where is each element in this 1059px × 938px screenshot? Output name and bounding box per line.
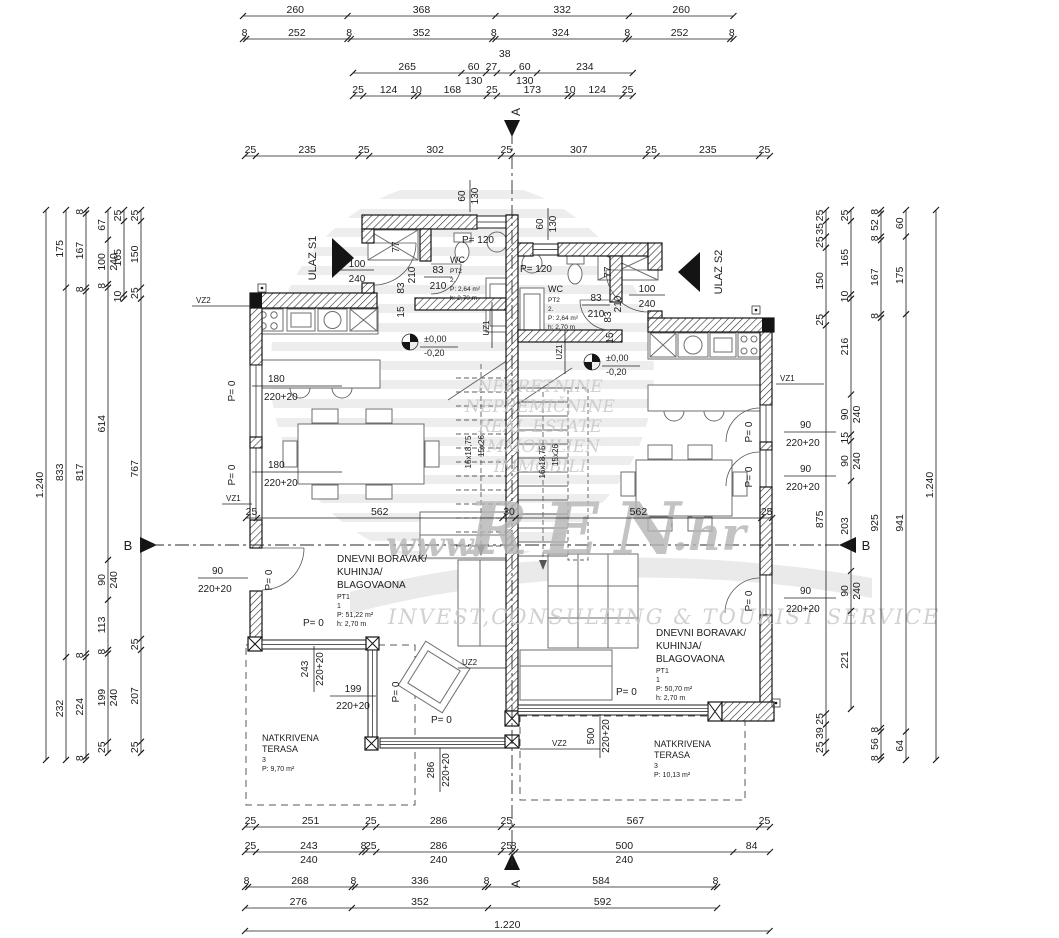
dim-value: 25	[501, 815, 513, 827]
p0-left-4: P= 0	[391, 681, 402, 702]
terrace-right-name-2: TERASA	[654, 750, 690, 760]
dim-value: 25	[622, 84, 634, 96]
p0-h-1: P= 0	[303, 618, 324, 629]
dim-chain-left-1: 1.240	[34, 207, 49, 763]
dim-value: 167	[74, 242, 86, 260]
dim-value: 941	[894, 514, 906, 532]
wc-right-height: h: 2,70 m	[548, 324, 575, 331]
dim-value: 25	[358, 144, 370, 156]
shower-left-label: P= 120	[462, 235, 494, 246]
level-left-zero: ±0,00	[424, 334, 446, 344]
dim-value: 368	[413, 4, 431, 16]
dim-value: 60	[468, 61, 480, 73]
dim-value: 10	[112, 290, 124, 302]
dim-value: 8	[729, 27, 735, 39]
dim-value: 8	[484, 875, 490, 887]
p0-right-1: P= 0	[744, 421, 755, 442]
win-90-left-width: 90	[212, 566, 224, 577]
dim-value: 833	[54, 463, 66, 481]
dim-value: 84	[746, 840, 758, 852]
door-s2-height: 240	[639, 299, 656, 310]
dim-sub-value: 240	[851, 452, 863, 470]
wc-right-num: 2.	[548, 306, 554, 313]
section-b-right-letter: B	[862, 538, 871, 553]
dim-chain-right-3: 852816789258568	[869, 207, 884, 763]
dim-83-left-rot: 83	[396, 282, 407, 294]
win-500-height: 220+20	[601, 719, 612, 753]
dim-value: 100	[96, 253, 108, 271]
dim-value: 8	[869, 313, 881, 319]
dim-value: 25	[112, 210, 124, 222]
dim-value: 25	[352, 84, 364, 96]
terrace-right-num: 3	[654, 763, 658, 770]
wm-tagline: INVEST,CONSULTING & TOURIST SERVICE	[387, 605, 940, 629]
dim-value: 8	[869, 209, 881, 215]
room-left-tag: PT1	[337, 594, 350, 601]
dim-chain-left-3: 8167881782248	[74, 207, 89, 763]
wc-right-door-width: 83	[590, 293, 602, 304]
dim-value: 150	[129, 245, 141, 263]
dim-77-left: 77	[391, 241, 402, 253]
dim-value: 25	[814, 210, 826, 222]
dim-value: 8	[511, 840, 517, 852]
dim-value: 25	[129, 741, 141, 753]
dim-value: 67	[96, 219, 108, 231]
room-right-name-3: BLAGOVAONA	[656, 654, 725, 665]
wc-left-name: WC	[450, 255, 465, 265]
dim-value: 307	[570, 144, 588, 156]
dim-value: 302	[426, 144, 444, 156]
win-180-1-height: 220+20	[264, 392, 298, 403]
p0-left-1: P= 0	[227, 380, 238, 401]
dim-value: 25	[245, 815, 257, 827]
win-90-r2-height: 220+20	[786, 482, 820, 493]
p0-right-3: P= 0	[744, 590, 755, 611]
entrance-s2-label: ULAZ S2	[713, 250, 725, 295]
dim-chain-right-4: 6017594164	[894, 207, 909, 763]
dim-value: 113	[96, 616, 108, 633]
dim-value: 8	[346, 27, 352, 39]
section-a-top-letter: A	[509, 108, 523, 116]
level-left-minus: -0,20	[424, 348, 445, 358]
dim-value: 1.220	[494, 919, 520, 931]
entrance-s1-label: ULAZ S1	[307, 236, 319, 281]
dim-value: 8	[242, 27, 248, 39]
dim-value: 27	[486, 61, 498, 73]
dim-value: 10	[839, 290, 851, 302]
win-90-left-height: 220+20	[198, 584, 232, 595]
dim-value: 90	[96, 574, 108, 586]
dim-value: 25	[129, 638, 141, 650]
wc-left-door-height: 210	[430, 281, 447, 292]
dim-chain-left-5: 2516510	[112, 207, 127, 302]
win-243-width: 243	[300, 660, 311, 677]
dim-value: 286	[430, 815, 448, 827]
wc-left-area: P: 2,64 m²	[450, 286, 481, 293]
dim-value: 165	[839, 249, 851, 267]
dim-value: 25	[365, 815, 377, 827]
dim-value: 260	[672, 4, 690, 16]
dim-value: 199	[96, 689, 108, 707]
win-90-r3-width: 90	[800, 586, 812, 597]
room-left-area: P: 51,22 m²	[337, 612, 374, 619]
dim-value: 332	[553, 4, 571, 16]
dim-chain-top-5: 2523525302253072523525	[242, 144, 773, 159]
dim-value: 221	[839, 651, 851, 669]
door-s1-width: 100	[349, 259, 366, 270]
corner-post	[708, 702, 722, 721]
dim-chain-bottom-1: 25251252862556725	[242, 815, 773, 830]
dim-value: 167	[869, 268, 881, 286]
wc-left-tag: PT2	[450, 268, 462, 275]
dim-value: 52	[869, 219, 881, 231]
dim-value: 235	[298, 144, 316, 156]
room-left-name-2: KUHINJA/	[337, 567, 383, 578]
win-199-height: 220+20	[336, 701, 370, 712]
dim-value: 175	[894, 267, 906, 285]
dim-value: 25	[814, 713, 826, 725]
dim-value: 124	[380, 84, 398, 96]
dim-chain-top-4: 2512410168251731012425	[350, 84, 636, 99]
dim-sub-value: 240	[430, 854, 448, 866]
dim-value: 1.240	[34, 472, 46, 498]
dim-value: 25	[501, 144, 513, 156]
dim-value: 8	[96, 283, 108, 289]
corner-post	[365, 737, 378, 750]
dim-sub-value: 240	[108, 571, 120, 589]
dim-value: 324	[552, 27, 570, 39]
level-right-zero: ±0,00	[606, 353, 628, 363]
dim-value: 90	[839, 408, 851, 420]
room-right-tag: PT1	[656, 668, 669, 675]
dim-value: 30	[503, 506, 515, 518]
wall-tag-vz1-right: VZ1	[780, 374, 795, 383]
room-left-num: 1	[337, 603, 341, 610]
dim-value: 232	[54, 700, 66, 718]
dim-value: 352	[411, 896, 429, 908]
floor-plan-page: NEKRETNINENEPREMIČNINEREAL ESTATEIMMOBIL…	[0, 0, 1059, 938]
dim-value: 25	[759, 144, 771, 156]
dim-value: 8	[869, 755, 881, 761]
level-marker-left	[402, 334, 418, 350]
dim-value: 252	[288, 27, 306, 39]
wall-tag-uz2: UZ2	[462, 658, 478, 667]
dim-value: 224	[74, 698, 86, 716]
wall-tag-uz1-right: UZ1	[555, 344, 564, 360]
dim-value: 150	[814, 272, 826, 290]
dim-value: 173	[524, 84, 542, 96]
room-right-num: 1	[656, 677, 660, 684]
win-90-r3-height: 220+20	[786, 604, 820, 615]
dim-chain-left-2: 175833232	[54, 207, 69, 763]
dim-value: 252	[671, 27, 689, 39]
wc-left-height: h: 2,70 m	[450, 295, 477, 302]
dim-83-right-rot: 83	[603, 311, 614, 323]
dim-sub-value: 240	[300, 854, 318, 866]
stairs-right-spec-2: 15x26	[551, 444, 560, 466]
wc-win-right-height: 130	[548, 215, 559, 232]
wall-tag-vz2-left: VZ2	[196, 296, 211, 305]
dim-value: 8	[624, 27, 630, 39]
dim-value: 251	[302, 815, 320, 827]
win-90-r2-width: 90	[800, 464, 812, 475]
wm-line1: NEKRETNINE	[476, 377, 603, 397]
dim-value: 25	[645, 144, 657, 156]
wc-left-num: 2.	[450, 277, 456, 284]
dim-value: 8	[74, 652, 86, 658]
wall-tag-vz1-left: VZ1	[226, 494, 241, 503]
wc-right-area: P: 2,64 m²	[548, 315, 579, 322]
p0-right-2: P= 0	[744, 466, 755, 487]
stairs-left-spec-2: 15x26	[477, 435, 486, 457]
dim-value: 25	[96, 741, 108, 753]
wm-line3: REAL ESTATE	[477, 417, 602, 437]
terrace-left-area: P: 9,70 m²	[262, 766, 295, 773]
dim-value: 124	[588, 84, 606, 96]
dim-value: 25	[839, 210, 851, 222]
dim-value: 268	[291, 875, 309, 887]
win-180-1-width: 180	[268, 374, 285, 385]
terrace-left-outline	[246, 645, 415, 805]
section-b-left-letter: B	[124, 538, 133, 553]
dim-value: 8	[74, 755, 86, 761]
win-500-width: 500	[586, 727, 597, 744]
table-terrace-left	[398, 641, 470, 713]
terrace-right-area: P: 10,13 m²	[654, 772, 691, 779]
dim-chain-bottom-4: 276352592	[242, 896, 720, 911]
section-a-bottom-letter: A	[509, 880, 523, 888]
shower-right-label: P= 120	[520, 264, 552, 275]
entrance-s2-arrow	[678, 252, 700, 292]
dim-value: 216	[839, 338, 851, 356]
kitchen-right	[648, 331, 762, 421]
section-b-right-marker	[839, 537, 856, 553]
wc-right-name: WC	[548, 284, 563, 294]
dim-chain-bottom-5: 1.220	[242, 919, 773, 934]
dim-value: 925	[869, 514, 881, 532]
dim-value: 8	[869, 727, 881, 733]
dim-value: 25	[761, 506, 773, 518]
dim-value: 614	[96, 415, 108, 433]
dim-chain-top-3: 26560130273860130234	[350, 48, 636, 87]
p0-left-2: P= 0	[227, 464, 238, 485]
dim-value: 25	[486, 84, 498, 96]
dim-value: 767	[129, 460, 141, 478]
dim-value: 38	[499, 48, 511, 60]
dim-value: 207	[129, 687, 141, 705]
room-right-area: P: 50,70 m²	[656, 686, 693, 693]
dim-value: 165	[112, 249, 124, 267]
dim-value: 60	[519, 61, 531, 73]
door-s2-width: 100	[639, 284, 656, 295]
wall-tag-uz1-left: UZ1	[482, 320, 491, 336]
dim-value: 276	[290, 896, 308, 908]
win-243-height: 220+20	[315, 652, 326, 686]
dim-value: 8	[713, 875, 719, 887]
level-right-minus: -0,20	[606, 367, 627, 377]
dim-77-right: 77	[603, 266, 614, 278]
dim-chain-top-2: 82528352832482528	[240, 27, 736, 42]
win-180-2-width: 180	[268, 460, 285, 471]
dim-value: 15	[839, 432, 851, 444]
dim-value: 25	[246, 506, 258, 518]
dim-value: 25	[365, 840, 377, 852]
dim-value: 352	[413, 27, 431, 39]
stairs-right-spec-1: 16x18,75	[538, 445, 547, 478]
p0-h-3: P= 0	[616, 687, 637, 698]
win-90-r1-width: 90	[800, 420, 812, 431]
p0-left-3: P= 0	[264, 569, 275, 590]
dim-value: 168	[444, 84, 462, 96]
dim-value: 260	[286, 4, 304, 16]
dim-value: 567	[627, 815, 645, 827]
room-right-name-1: DNEVNI BORAVAK/	[656, 628, 746, 639]
dim-chain-top-1: 260368332260	[240, 4, 736, 19]
dim-value: 8	[74, 209, 86, 215]
dim-value: 8	[96, 649, 108, 655]
dim-value: 875	[814, 510, 826, 528]
wc-win-right-width: 60	[535, 218, 546, 230]
win-286-height: 220+20	[441, 753, 452, 787]
dim-value: 175	[54, 240, 66, 258]
terrace-right-outline	[520, 716, 745, 800]
dim-value: 10	[564, 84, 576, 96]
dim-value: 25	[814, 236, 826, 248]
win-199-width: 199	[345, 684, 362, 695]
dim-value: 234	[576, 61, 594, 73]
dim-value: 286	[430, 840, 448, 852]
room-right-name-2: KUHINJA/	[656, 641, 702, 652]
dim-sub-value: 240	[616, 854, 634, 866]
dim-value: 265	[398, 61, 416, 73]
dim-value: 336	[411, 875, 429, 887]
dim-value: 243	[300, 840, 318, 852]
wm-ren: REN	[466, 486, 697, 571]
dim-value: 562	[630, 506, 648, 518]
dim-chain-right-5: 1.240	[924, 207, 939, 763]
dim-value: 90	[839, 455, 851, 467]
sliding-door-left	[380, 738, 506, 748]
p0-h-2: P= 0	[431, 715, 452, 726]
wc-right-tag: PT2	[548, 297, 560, 304]
dim-210-right-rot: 210	[613, 295, 624, 312]
win-180-2-height: 220+20	[264, 478, 298, 489]
dim-value: 8	[491, 27, 497, 39]
dim-value: 10	[410, 84, 422, 96]
dim-value: 56	[869, 738, 881, 750]
dim-value: 8	[350, 875, 356, 887]
wm-line2: NEPREMIČNINE	[464, 396, 616, 417]
terrace-left-name-2: TERASA	[262, 744, 298, 754]
dim-sub-value: 240	[851, 406, 863, 424]
room-left-name-3: BLAGOVAONA	[337, 580, 406, 591]
dim-value: 592	[594, 896, 612, 908]
sliding-door-right	[518, 705, 708, 715]
terrace-right-name-1: NATKRIVENA	[654, 739, 711, 749]
dim-value: 25	[129, 287, 141, 299]
wc-left-door-width: 83	[432, 265, 444, 276]
dim-value: 1.240	[924, 472, 936, 498]
dim-15-right-rot: 15	[605, 332, 616, 344]
room-left-height: h: 2,70 m	[337, 621, 366, 628]
floor-plan-drawing: NEKRETNINENEPREMIČNINEREAL ESTATEIMMOBIL…	[0, 0, 1059, 938]
dim-value: 25	[245, 144, 257, 156]
dim-value: 25	[245, 840, 257, 852]
dim-chain-left-4: 67100240861490240113819924025	[96, 207, 120, 756]
dim-value: 25	[759, 815, 771, 827]
corner-post	[366, 637, 379, 650]
room-left-name-1: DNEVNI BORAVAK/	[337, 554, 427, 565]
dim-210-left-rot: 210	[407, 266, 418, 283]
dim-sub-value: 240	[108, 689, 120, 707]
dim-value: 562	[371, 506, 389, 518]
island-right	[648, 385, 762, 411]
wc-win-left-height: 130	[470, 187, 481, 204]
dim-chain-bottom-3: 8268833685848	[242, 875, 720, 890]
dim-value: 90	[839, 585, 851, 597]
dim-value: 25	[129, 210, 141, 222]
dim-value: 500	[616, 840, 634, 852]
win-286-width: 286	[426, 761, 437, 778]
dim-chain-left-6: 25150257672520725	[129, 207, 144, 756]
dim-value: 8	[244, 875, 250, 887]
stairs-left-spec-1: 16x18,75	[464, 435, 473, 468]
wc-win-left-width: 60	[457, 190, 468, 202]
room-right-height: h: 2,70 m	[656, 695, 685, 702]
dim-value: 817	[74, 463, 86, 481]
dim-value: 8	[74, 286, 86, 292]
dim-value: 60	[894, 217, 906, 229]
dim-sub-value: 130	[465, 75, 483, 87]
dim-value: 35	[814, 223, 826, 235]
dim-value: 64	[894, 740, 906, 752]
win-90-r1-height: 220+20	[786, 438, 820, 449]
dim-value: 25	[814, 741, 826, 753]
toilet-right	[568, 264, 582, 284]
door-s1-height: 240	[349, 274, 366, 285]
wm-hr: .hr	[672, 507, 749, 561]
dim-sub-value: 240	[851, 582, 863, 600]
dim-value: 584	[592, 875, 610, 887]
dim-value: 203	[839, 517, 851, 535]
dim-value: 25	[814, 314, 826, 326]
wall-tag-vz2-right: VZ2	[552, 739, 567, 748]
terrace-left-name-1: NATKRIVENA	[262, 733, 319, 743]
dim-value: 39	[814, 727, 826, 739]
level-marker-right	[584, 354, 600, 370]
corner-post	[248, 637, 262, 651]
dim-chain-right-2: 251651021690240159024020390240221	[839, 207, 863, 712]
dim-chain-bottom-2: 2524324082528624025850024084	[242, 840, 773, 866]
dim-value: 8	[869, 235, 881, 241]
dim-15-left-rot: 15	[396, 306, 407, 318]
dim-value: 235	[699, 144, 717, 156]
terrace-left-num: 3	[262, 757, 266, 764]
